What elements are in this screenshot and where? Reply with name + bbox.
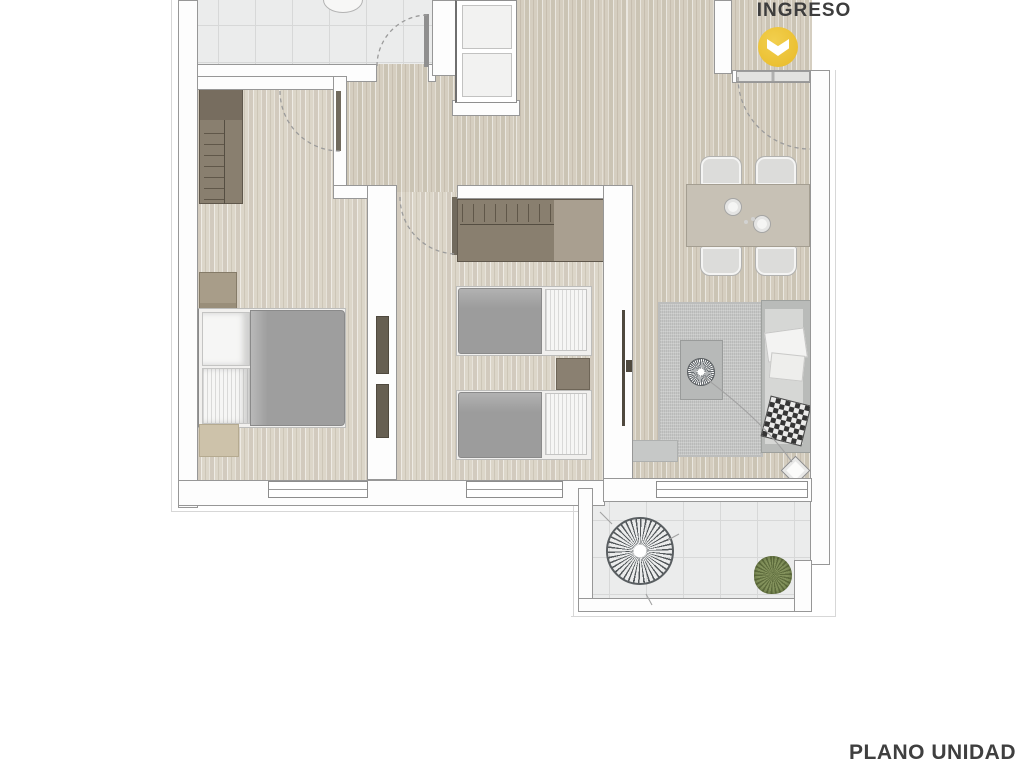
plan-title: PLANO UNIDAD	[849, 741, 1016, 765]
floor-lamp-arm	[704, 377, 792, 462]
floor-plan-canvas: INGRESO PLANO UNIDAD	[0, 0, 1024, 768]
bedroom-2-door-swing-arc	[400, 197, 457, 254]
entry-door-swing-arc	[738, 77, 810, 149]
chevron-down-icon	[767, 39, 789, 56]
chair-leg	[600, 512, 612, 524]
chair-leg	[668, 534, 679, 540]
chair-leg	[646, 594, 652, 605]
annotation-layer	[0, 0, 1024, 768]
bathroom-door-swing-arc	[377, 15, 428, 66]
entrance-marker	[758, 27, 798, 67]
bedroom-1-door-swing-arc	[280, 91, 340, 151]
entrance-label: INGRESO	[744, 0, 864, 22]
